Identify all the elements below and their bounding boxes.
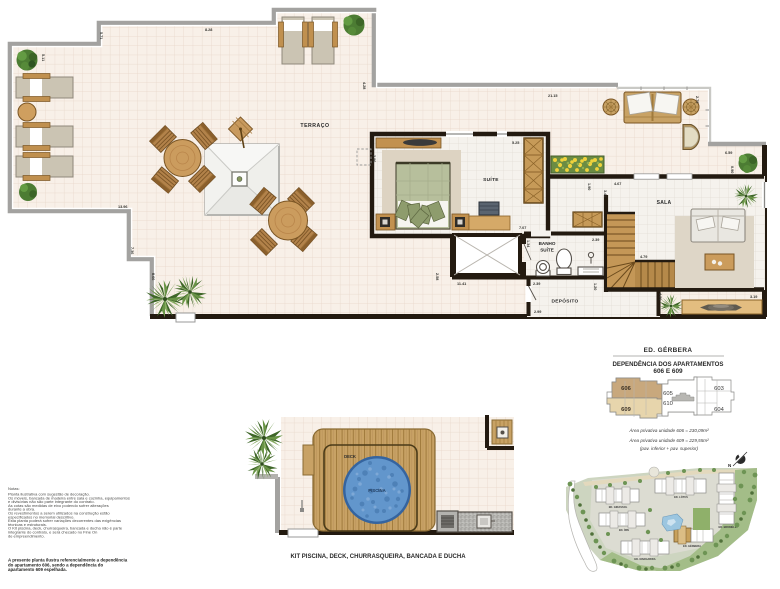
svg-text:TERRAÇO: TERRAÇO [300,123,329,129]
svg-text:3.19: 3.19 [750,295,757,299]
svg-text:DEPENDÊNCIA DOS APARTAMENTOS: DEPENDÊNCIA DOS APARTAMENTOS [613,360,724,368]
svg-text:8.66: 8.66 [151,273,155,280]
svg-text:603: 603 [714,386,724,392]
svg-text:604: 604 [714,407,724,413]
svg-text:0.90: 0.90 [730,166,734,173]
svg-text:606 E 609: 606 E 609 [653,368,683,375]
svg-text:5.11: 5.11 [41,54,45,61]
svg-text:610: 610 [663,401,673,407]
svg-text:5.25: 5.25 [512,141,519,145]
svg-text:1.90: 1.90 [587,183,591,190]
svg-text:4.67: 4.67 [614,182,621,186]
svg-text:DECK: DECK [344,454,356,459]
svg-text:8.28: 8.28 [205,28,212,32]
svg-text:609: 609 [621,407,631,413]
svg-text:11.41: 11.41 [457,282,466,286]
svg-text:4.79: 4.79 [640,255,647,259]
svg-text:605: 605 [663,391,673,397]
svg-text:606: 606 [621,386,631,392]
svg-text:1.20: 1.20 [593,283,597,290]
svg-text:4.29: 4.29 [658,293,662,300]
svg-text:7.36: 7.36 [130,247,134,254]
svg-text:7.07: 7.07 [519,226,526,230]
svg-text:SALA: SALA [657,200,672,206]
svg-text:PISCINA: PISCINA [368,488,385,493]
svg-text:2.58: 2.58 [435,273,439,280]
svg-text:ED. MARGARIDA: ED. MARGARIDA [634,557,655,561]
svg-text:apartamento 609 espelhada.: apartamento 609 espelhada. [8,567,67,572]
svg-text:3.41: 3.41 [603,190,607,197]
svg-text:2.96: 2.96 [372,155,376,162]
svg-text:2.79: 2.79 [695,96,699,103]
svg-text:de empreendimento.: de empreendimento. [8,533,45,538]
svg-text:ED. GIRASSOL: ED. GIRASSOL [609,505,628,509]
svg-text:BANHO: BANHO [539,241,556,246]
svg-text:2.99: 2.99 [534,310,541,314]
svg-text:21.15: 21.15 [548,94,558,98]
svg-text:1.34: 1.34 [526,240,530,248]
svg-text:Área privativa unidade 609 =: Área privativa unidade 609 = 229,55m² [628,437,709,443]
svg-text:2.39: 2.39 [592,238,599,242]
svg-text:4.28: 4.28 [362,82,366,89]
svg-text:2.39: 2.39 [533,282,540,286]
svg-text:Notas:: Notas: [8,486,20,491]
svg-text:13.96: 13.96 [118,205,128,209]
svg-text:Área privativa unidade 606 =: Área privativa unidade 606 = 230,09m² [628,427,709,433]
svg-text:KIT PISCINA, DECK, CHURRASQUEI: KIT PISCINA, DECK, CHURRASQUEIRA, BANCAD… [290,554,466,560]
svg-text:SUÍTE: SUÍTE [540,246,554,253]
svg-text:5.71: 5.71 [99,32,103,39]
svg-text:(pav. inferior + pav. superior: (pav. inferior + pav. superior) [640,446,699,451]
svg-text:ED. GÉRBERA: ED. GÉRBERA [644,345,693,354]
svg-text:6.59: 6.59 [725,151,732,155]
